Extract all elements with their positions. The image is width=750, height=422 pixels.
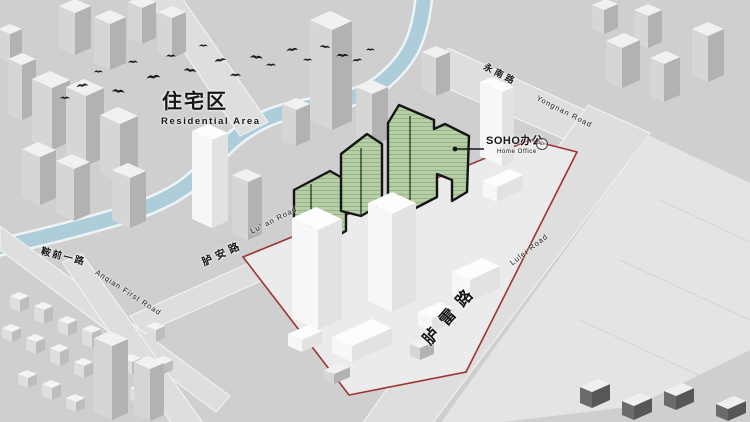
building xyxy=(422,46,450,96)
building xyxy=(32,71,70,150)
soho-office-label-zh: SOHO办公 xyxy=(486,136,543,147)
building xyxy=(692,22,724,82)
building xyxy=(66,79,104,166)
building xyxy=(42,380,61,400)
building xyxy=(56,154,90,221)
building xyxy=(94,10,126,70)
building xyxy=(112,163,146,228)
building xyxy=(34,302,53,324)
building xyxy=(606,33,640,88)
building xyxy=(26,334,45,354)
residential-area-label-zh: 住宅区 xyxy=(162,92,228,112)
building xyxy=(128,0,156,44)
building xyxy=(650,51,680,102)
home-office-badge-icon: ⌂ xyxy=(536,138,548,150)
building xyxy=(22,142,56,205)
building xyxy=(94,331,128,420)
residential-area-label-en: Residential Area xyxy=(161,117,261,127)
leader-dot xyxy=(453,147,458,152)
soho-office-label-en: Home Office xyxy=(497,149,537,155)
axonometric-scene xyxy=(0,0,750,422)
building xyxy=(310,11,352,130)
building xyxy=(192,124,228,228)
building xyxy=(59,0,91,55)
building xyxy=(146,322,165,342)
building xyxy=(58,316,77,336)
building xyxy=(8,53,36,120)
building xyxy=(134,356,164,421)
site-diagram: 住宅区 Residential Area SOHO办公 Home Office … xyxy=(0,0,750,422)
building xyxy=(10,292,29,312)
building xyxy=(50,344,69,366)
building xyxy=(282,98,310,146)
building xyxy=(592,0,618,34)
building xyxy=(368,192,416,312)
building xyxy=(158,6,186,58)
building xyxy=(74,358,93,378)
building xyxy=(292,207,342,330)
